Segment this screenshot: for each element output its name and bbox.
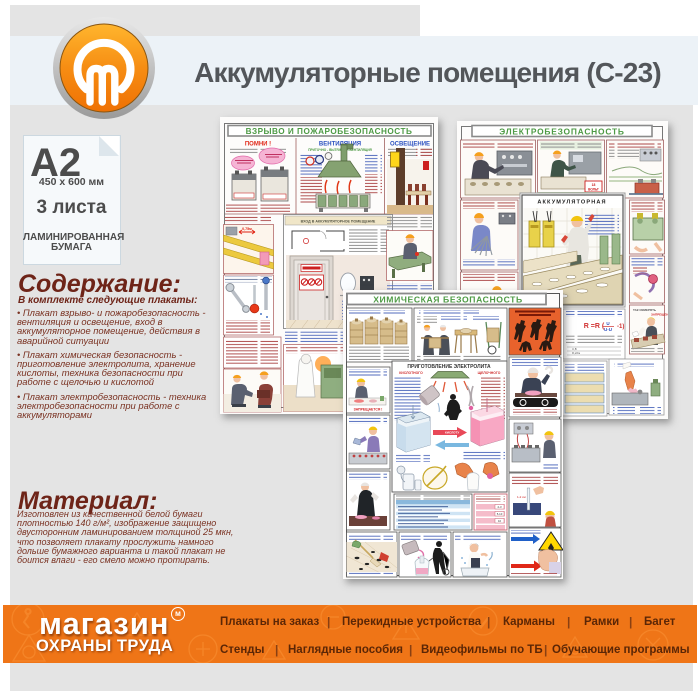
svg-text:ЗАПРЕЩАЕТСЯ !: ЗАПРЕЩАЕТСЯ ! (354, 408, 383, 412)
svg-text:2-3: 2-3 (497, 505, 501, 509)
svg-text:1-2 см: 1-2 см (517, 495, 526, 499)
svg-text:АККУМУЛЯТОРНАЯ: АККУМУЛЯТОРНАЯ (537, 200, 606, 206)
svg-text:ОСВЕЩЕНИЕ: ОСВЕЩЕНИЕ (390, 142, 430, 148)
svg-text:ПРИТОЧНО - ВЫТЯЖНАЯ ВЕНТИЛЯЦИЯ: ПРИТОЧНО - ВЫТЯЖНАЯ ВЕНТИЛЯЦИЯ (308, 148, 372, 152)
svg-text:ВХОД В АККУМУЛЯТОРНОЕ ПОМЕЩЕНИ: ВХОД В АККУМУЛЯТОРНОЕ ПОМЕЩЕНИЕ (301, 220, 376, 224)
svg-text:-1): -1) (617, 324, 624, 330)
svg-text:ТАК ИЗМЕРЯТЬ: ТАК ИЗМЕРЯТЬ (633, 308, 657, 312)
svg-text:ЭЛЕКТРОБЕЗОПАСНОСТЬ: ЭЛЕКТРОБЕЗОПАСНОСТЬ (499, 127, 624, 137)
svg-text:ВЕНТИЛЯЦИЯ: ВЕНТИЛЯЦИЯ (319, 142, 361, 148)
svg-text:5-10: 5-10 (497, 512, 503, 516)
svg-text:R =R (: R =R ( (584, 323, 605, 330)
svg-text:R,кОм: R,кОм (572, 351, 580, 355)
svg-text:ЩЕЛОЧНОГО: ЩЕЛОЧНОГО (478, 371, 501, 375)
svg-text:ХИМИЧЕСКАЯ БЕЗОПАСНОСТЬ: ХИМИЧЕСКАЯ БЕЗОПАСНОСТЬ (373, 295, 523, 305)
svg-text:КИСЛОТНОГО: КИСЛОТНОГО (399, 371, 423, 375)
svg-text:ВОЛЬТ: ВОЛЬТ (588, 188, 599, 192)
svg-text:ЗАПРЕЩЕНО: ЗАПРЕЩЕНО (651, 313, 668, 317)
svg-text:18: 18 (592, 183, 596, 187)
svg-text:КИСЛОТУ: КИСЛОТУ (445, 431, 459, 435)
svg-text:U: U (606, 321, 609, 326)
svg-text:10: 10 (498, 519, 502, 523)
svg-text:ВЗРЫВО И ПОЖАРОБЕЗОПАСНОСТЬ: ВЗРЫВО И ПОЖАРОБЕЗОПАСНОСТЬ (246, 127, 413, 136)
svg-text:0,75м: 0,75м (242, 227, 252, 231)
svg-text:U-U: U-U (604, 327, 612, 332)
svg-text:ПРИГОТОВЛЕНИЕ ЭЛЕКТРОЛИТА: ПРИГОТОВЛЕНИЕ ЭЛЕКТРОЛИТА (407, 364, 491, 370)
svg-text:ПОМНИ !: ПОМНИ ! (245, 142, 271, 148)
